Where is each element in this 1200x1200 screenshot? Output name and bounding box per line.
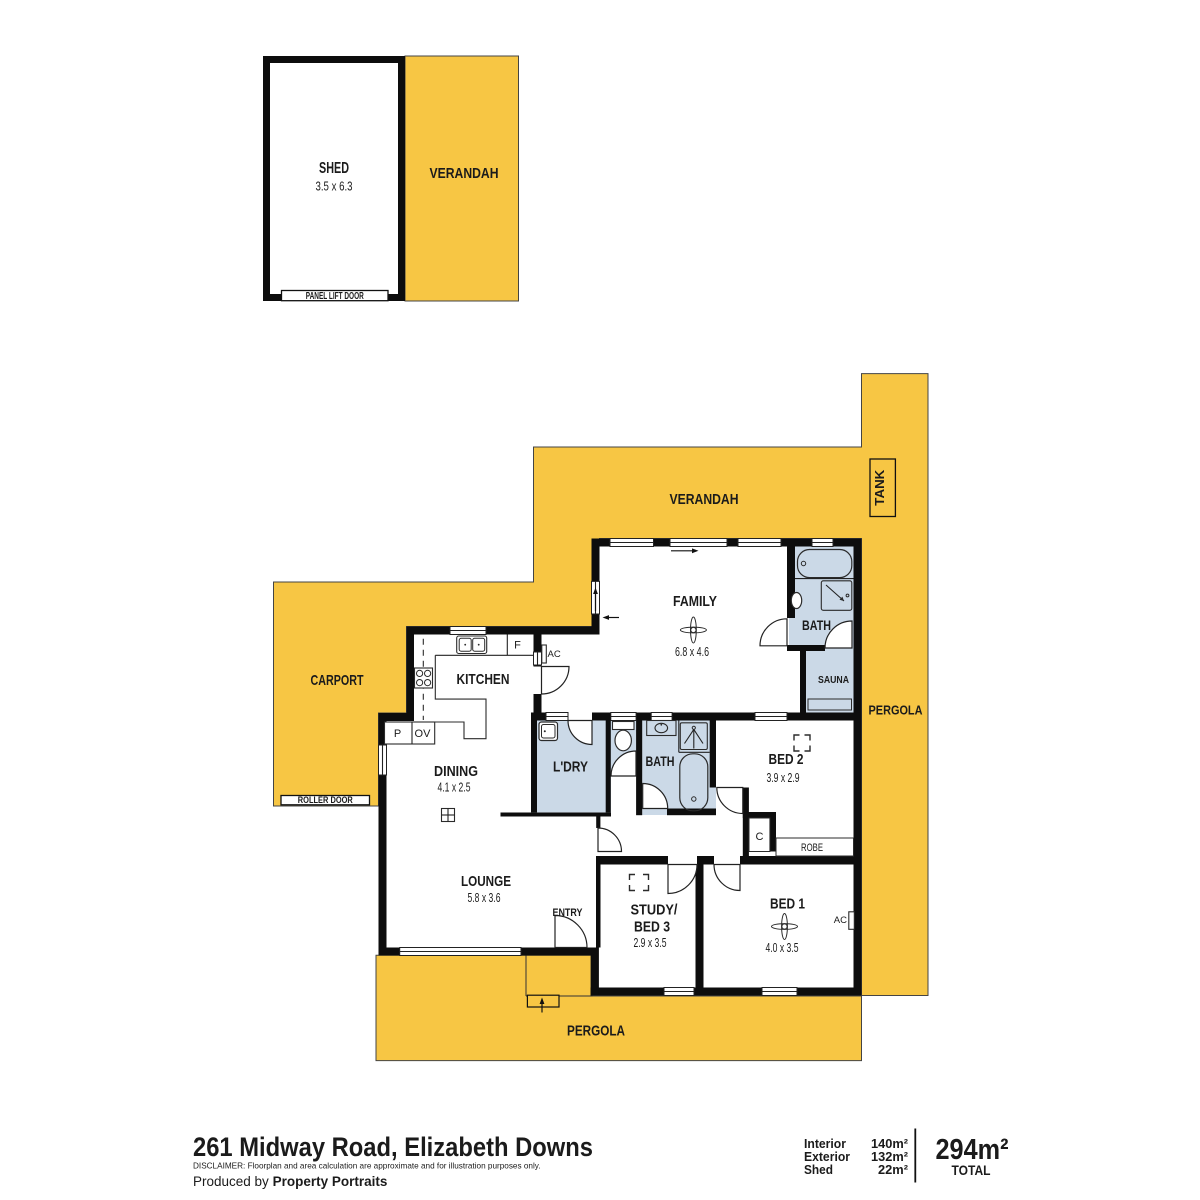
svg-text:AC: AC [548,649,561,660]
svg-text:Shed: Shed [804,1162,833,1177]
svg-text:P: P [394,728,401,740]
svg-text:6.8 x 4.6: 6.8 x 4.6 [675,645,709,659]
svg-text:ROBE: ROBE [801,842,823,854]
svg-text:DISCLAIMER: Floorplan and area: DISCLAIMER: Floorplan and area calculati… [193,1162,541,1171]
svg-text:2.9 x 3.5: 2.9 x 3.5 [634,936,667,950]
svg-text:BED 2: BED 2 [769,751,804,768]
svg-text:C: C [756,831,764,843]
svg-text:Produced by Property Portraits: Produced by Property Portraits [193,1174,387,1189]
svg-text:TANK: TANK [872,469,887,506]
svg-text:STUDY/: STUDY/ [631,902,679,919]
svg-text:4.0 x 3.5: 4.0 x 3.5 [766,941,799,955]
svg-text:22m²: 22m² [878,1162,909,1177]
svg-text:261 Midway Road, Elizabeth Dow: 261 Midway Road, Elizabeth Downs [193,1132,593,1162]
svg-text:4.1 x 2.5: 4.1 x 2.5 [438,781,471,795]
svg-text:VERANDAH: VERANDAH [670,491,739,508]
svg-text:ROLLER DOOR: ROLLER DOOR [298,795,353,806]
svg-text:BED 1: BED 1 [770,896,805,913]
svg-text:PERGOLA: PERGOLA [869,703,924,718]
svg-text:CARPORT: CARPORT [311,672,364,689]
svg-text:TOTAL: TOTAL [952,1163,991,1178]
svg-text:PANEL LIFT DOOR: PANEL LIFT DOOR [306,291,364,302]
svg-text:DINING: DINING [434,763,478,780]
svg-text:PERGOLA: PERGOLA [567,1023,625,1040]
svg-text:VERANDAH: VERANDAH [430,165,499,182]
svg-text:FAMILY: FAMILY [673,593,717,610]
svg-text:F: F [514,640,521,652]
svg-text:5.8 x 3.6: 5.8 x 3.6 [468,891,501,905]
svg-text:KITCHEN: KITCHEN [457,671,510,688]
svg-text:BED 3: BED 3 [634,919,670,936]
svg-text:SHED: SHED [319,160,349,177]
svg-text:L'DRY: L'DRY [553,759,588,776]
svg-text:AC: AC [834,915,847,926]
svg-text:3.9 x 2.9: 3.9 x 2.9 [767,771,800,785]
svg-text:ENTRY: ENTRY [553,907,584,919]
svg-text:3.5 x 6.3: 3.5 x 6.3 [316,180,353,194]
svg-text:OV: OV [415,728,432,740]
svg-text:BATH: BATH [646,753,675,769]
svg-text:294m²: 294m² [936,1134,1009,1166]
svg-text:LOUNGE: LOUNGE [461,873,511,890]
svg-text:BATH: BATH [802,617,831,633]
svg-text:SAUNA: SAUNA [818,674,849,686]
